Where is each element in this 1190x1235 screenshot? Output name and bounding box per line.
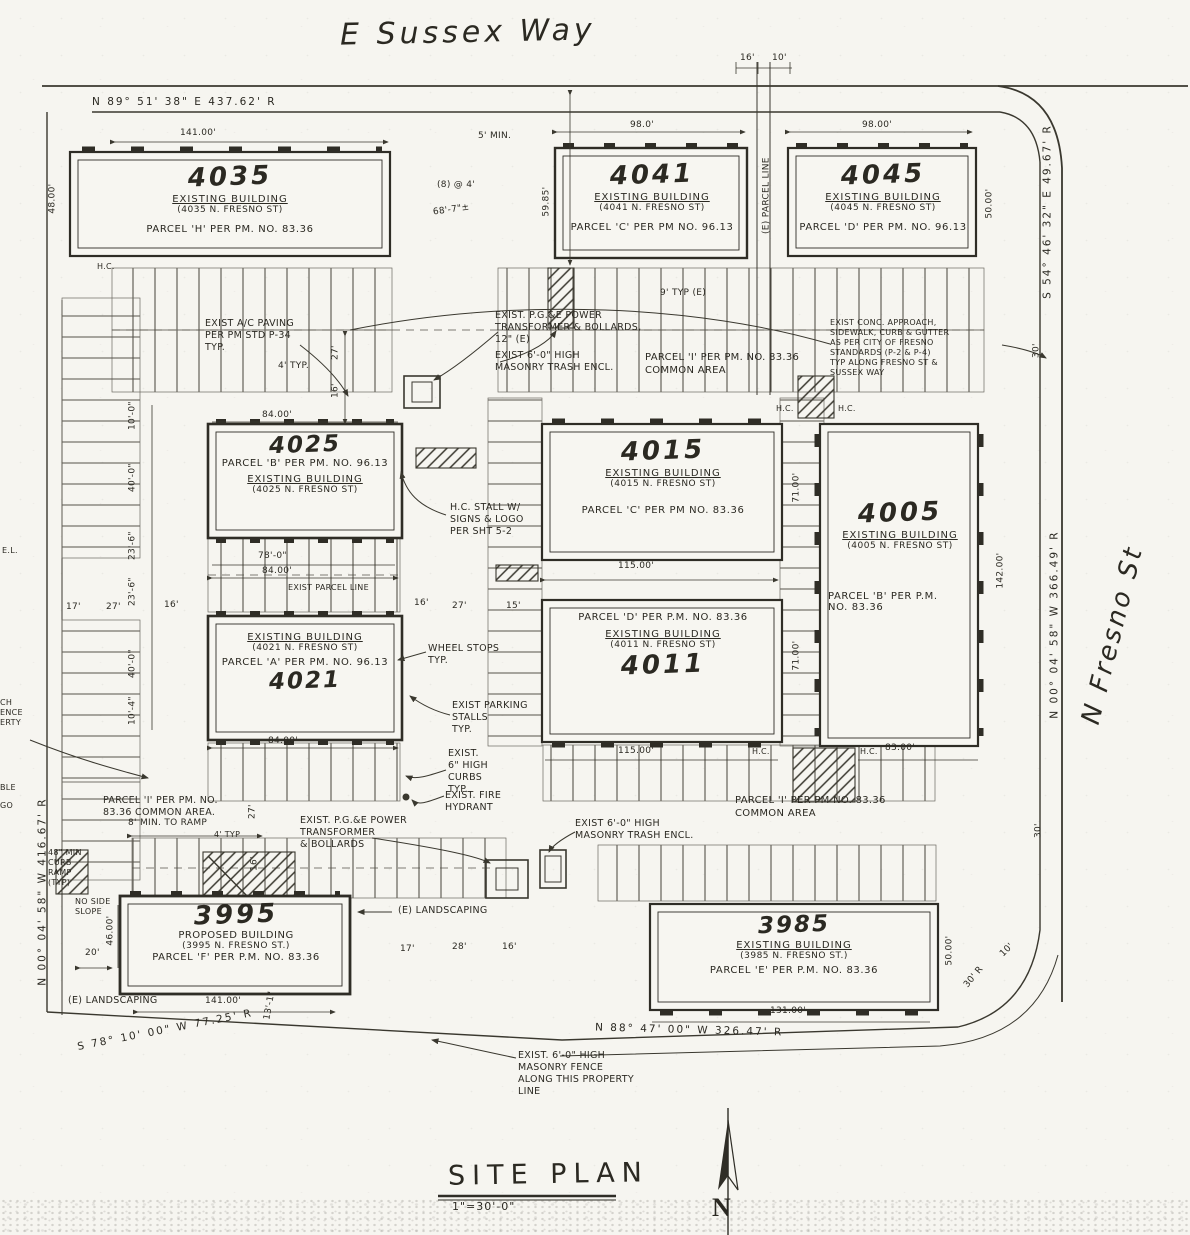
building-address: (4041 N. FRESNO ST) xyxy=(562,203,742,213)
dim-5min: 5' MIN. xyxy=(478,131,511,142)
note-masonry-fence: EXIST. 6'-0" HIGH MASONRY FENCE ALONG TH… xyxy=(518,1050,634,1098)
building-status: EXISTING BUILDING xyxy=(90,194,370,205)
building-parcel: PARCEL 'D' PER P.M. NO. 83.36 xyxy=(552,612,774,623)
dim-98-4041: 98.0' xyxy=(630,120,654,131)
site-plan-sheet: E Sussex Way N Fresno St N 89° 51' 38" E… xyxy=(0,0,1190,1235)
building-address: (4021 N. FRESNO ST) xyxy=(216,643,394,653)
hc-label: H.C. xyxy=(776,404,794,414)
dim-30-right-upper: 30' xyxy=(1031,336,1042,366)
dim-16-bottom2: 16' xyxy=(249,849,260,879)
note-landscaping-sw: (E) LANDSCAPING xyxy=(68,995,158,1007)
building-4041: 4041 EXISTING BUILDING (4041 N. FRESNO S… xyxy=(562,160,742,233)
building-4011: PARCEL 'D' PER P.M. NO. 83.36 EXISTING B… xyxy=(552,612,774,680)
dim-9-typ: 9' TYP (E) xyxy=(660,288,706,299)
dim-10-top: 10' xyxy=(772,53,787,64)
dim-16-v: 16' xyxy=(330,373,341,409)
building-parcel: PARCEL 'E' PER P.M. NO. 83.36 xyxy=(660,965,928,976)
dim-chain-10-4: 10'-4" xyxy=(127,689,138,733)
building-status: EXISTING BUILDING xyxy=(828,530,972,541)
note-hc-stall: H.C. STALL W/ SIGNS & LOGO PER SHT 5-2 xyxy=(450,502,524,538)
dim-27-row: 27' xyxy=(106,602,121,613)
building-parcel: PARCEL 'D' PER PM. NO. 96.13 xyxy=(794,222,972,233)
dim-27-row2: 27' xyxy=(452,601,467,612)
building-number: 4025 xyxy=(216,429,395,461)
dim-16-row2: 16' xyxy=(414,598,429,609)
dim-50-4045: 50.00' xyxy=(984,179,995,229)
building-4025: 4025 PARCEL 'B' PER PM. NO. 96.13 EXISTI… xyxy=(216,432,394,495)
building-3995: 3995 PROPOSED BUILDING (3995 N. FRESNO S… xyxy=(132,900,340,963)
dim-83: 83.00' xyxy=(885,743,915,754)
building-address: (4005 N. FRESNO ST) xyxy=(828,541,972,551)
note-conc-approach: EXIST CONC. APPROACH, SIDEWALK, CURB & G… xyxy=(830,318,949,378)
dim-115-4011: 115.00' xyxy=(618,746,654,757)
note-parking-stalls: EXIST PARKING STALLS TYP. xyxy=(452,700,528,736)
building-address: (4035 N. FRESNO ST) xyxy=(90,205,370,215)
dim-5985: 59.85' xyxy=(541,177,552,227)
note-curb-ramp: 48" MIN CURB RAMP (TYP) xyxy=(48,848,82,888)
building-number: 4045 xyxy=(794,157,973,193)
note-landscaping-mid: (E) LANDSCAPING xyxy=(398,905,488,917)
street-name-sussex-way: E Sussex Way xyxy=(340,11,596,54)
building-address: (4015 N. FRESNO ST) xyxy=(552,479,774,489)
dim-84-mid: 84.00' xyxy=(262,566,292,577)
note-trash-enclosure-top: EXIST 6'-0" HIGH MASONRY TRASH ENCL. xyxy=(495,350,614,374)
building-parcel: PARCEL 'H' PER PM. NO. 83.36 xyxy=(90,224,370,235)
fragment-left-1: E.L. xyxy=(2,546,18,556)
dim-84-4021: 84.00' xyxy=(268,736,298,747)
dim-50-3985: 50.00' xyxy=(944,926,955,976)
dim-46: 46.00' xyxy=(105,906,116,956)
dim-78-0: 78'-0" xyxy=(258,551,287,562)
note-ac-paving: EXIST A/C PAVING PER PM STD P-34 TYP. xyxy=(205,318,294,354)
dim-27-bottom: 27' xyxy=(247,797,258,827)
dim-28: 28' xyxy=(452,942,467,953)
dim-chain-10-0: 10'-0" xyxy=(127,394,138,438)
dim-15-row: 15' xyxy=(506,601,521,612)
dim-chain-40-0b: 40'-0" xyxy=(127,642,138,686)
building-4035: 4035 EXISTING BUILDING (4035 N. FRESNO S… xyxy=(90,162,370,235)
dim-71-4015: 71.00' xyxy=(791,466,802,510)
building-number: 4035 xyxy=(90,157,371,197)
dim-8-min-ramp: 8' MIN. TO RAMP xyxy=(128,818,207,829)
dim-141-top: 141.00' xyxy=(180,128,216,139)
dim-142: 142.00' xyxy=(995,544,1006,598)
building-address: (4025 N. FRESNO ST) xyxy=(216,485,394,495)
building-address: (4045 N. FRESNO ST) xyxy=(794,203,972,213)
building-number: 3995 xyxy=(132,896,341,933)
bearing-right-lower: N 00° 04' 58" W 366.49' R xyxy=(1048,530,1061,720)
building-number: 4015 xyxy=(552,432,775,470)
dim-4-typ: 4' TYP. xyxy=(278,361,309,372)
note-trash-enclosure-bottom: EXIST 6'-0" HIGH MASONRY TRASH ENCL. xyxy=(575,818,694,842)
building-4045: 4045 EXISTING BUILDING (4045 N. FRESNO S… xyxy=(794,160,972,233)
scan-noise xyxy=(0,1198,1190,1235)
bearing-top: N 89° 51' 38" E 437.62' R xyxy=(92,96,277,109)
building-number: 3985 xyxy=(660,907,929,942)
note-pge-transformer-top: EXIST. P.G.&E POWER TRANSFORMER & BOLLAR… xyxy=(495,310,641,346)
building-number: 4021 xyxy=(216,665,395,697)
sheet-title: SITE PLAN xyxy=(448,1156,649,1193)
hc-label: H.C. xyxy=(97,262,115,272)
dim-17-row: 17' xyxy=(66,602,81,613)
note-common-area-sw: PARCEL 'I' PER PM. NO. 83.36 COMMON AREA… xyxy=(103,795,218,819)
building-4005: 4005 EXISTING BUILDING (4005 N. FRESNO S… xyxy=(828,498,972,613)
note-common-area-mid: PARCEL 'I' PER PM. NO. 83.36 COMMON AREA xyxy=(645,352,799,377)
dim-16-row: 16' xyxy=(164,600,179,611)
building-status: EXISTING BUILDING xyxy=(552,468,774,479)
building-4015: 4015 EXISTING BUILDING (4015 N. FRESNO S… xyxy=(552,436,774,516)
note-pge-transformer-bottom: EXIST. P.G.&E POWER TRANSFORMER & BOLLAR… xyxy=(300,815,407,851)
dim-16-bottom: 16' xyxy=(502,942,517,953)
dim-141-bottom: 141.00' xyxy=(205,996,241,1007)
note-high-curbs: EXIST. 6" HIGH CURBS TYP. xyxy=(448,748,488,796)
fragment-left-2: CH ENCE ERTY xyxy=(0,698,23,728)
building-status: EXISTING BUILDING xyxy=(552,629,774,640)
hc-label: H.C. xyxy=(838,404,856,414)
dim-30-right-lower: 30' xyxy=(1033,816,1044,846)
note-parcel-line-vertical: (E) PARCEL LINE xyxy=(761,141,772,251)
building-parcel: PARCEL 'C' PER PM NO. 83.36 xyxy=(552,505,774,516)
dim-98-4045: 98.00' xyxy=(862,120,892,131)
building-status: EXISTING BUILDING xyxy=(794,192,972,203)
dim-84-top: 84.00' xyxy=(262,410,292,421)
dim-chain-23-6a: 23'-6" xyxy=(127,524,138,568)
building-status: EXISTING BUILDING xyxy=(216,632,394,643)
dim-4-typ-bottom: 4' TYP xyxy=(214,830,240,840)
dim-115-4015: 115.00' xyxy=(618,561,654,572)
building-parcel: PARCEL 'B' PER P.M. NO. 83.36 xyxy=(828,591,972,613)
hc-label: H.C. xyxy=(752,747,770,757)
bearing-right-upper: S 54° 46' 32" E 49.67' R xyxy=(1041,122,1054,302)
building-number: 4005 xyxy=(828,495,973,530)
building-parcel: PARCEL 'F' PER P.M. NO. 83.36 xyxy=(132,952,340,963)
bearing-left: N 00° 04' 58" W 416.67' R xyxy=(36,797,49,987)
dim-27-v: 27' xyxy=(330,335,341,371)
dim-chain-40-0a: 40'-0" xyxy=(127,456,138,500)
fragment-left-4: GO xyxy=(0,801,13,811)
dim-131: 131.00' xyxy=(770,1006,806,1017)
note-common-area-se: PARCEL 'I' PER PM NO. 83.36 COMMON AREA xyxy=(735,795,886,820)
building-status: EXISTING BUILDING xyxy=(216,474,394,485)
dim-16-top: 16' xyxy=(740,53,755,64)
dim-chain-23-6b: 23'-6" xyxy=(127,570,138,614)
dim-17-bottom: 17' xyxy=(400,944,415,955)
building-number: 4041 xyxy=(562,157,743,193)
dim-20: 20' xyxy=(85,948,100,959)
fragment-left-3: BLE xyxy=(0,783,16,793)
dim-71-4011: 71.00' xyxy=(791,634,802,678)
note-wheel-stops: WHEEL STOPS TYP. xyxy=(428,643,499,667)
note-fire-hydrant: EXIST. FIRE HYDRANT xyxy=(445,790,501,814)
note-exist-parcel-line: EXIST PARCEL LINE xyxy=(288,583,369,593)
dim-8at4: (8) @ 4' xyxy=(437,180,475,191)
building-address: (3995 N. FRESNO ST.) xyxy=(132,941,340,951)
building-address: (3985 N. FRESNO ST.) xyxy=(660,951,928,961)
dim-48: 48.00' xyxy=(47,174,58,224)
building-3985: 3985 EXISTING BUILDING (3985 N. FRESNO S… xyxy=(660,912,928,976)
building-number: 4011 xyxy=(552,646,775,684)
building-4021: EXISTING BUILDING (4021 N. FRESNO ST) PA… xyxy=(216,630,394,694)
building-status: EXISTING BUILDING xyxy=(562,192,742,203)
building-status: EXISTING BUILDING xyxy=(660,940,928,951)
hc-label: H.C. xyxy=(860,747,878,757)
building-parcel: PARCEL 'C' PER PM NO. 96.13 xyxy=(562,222,742,233)
